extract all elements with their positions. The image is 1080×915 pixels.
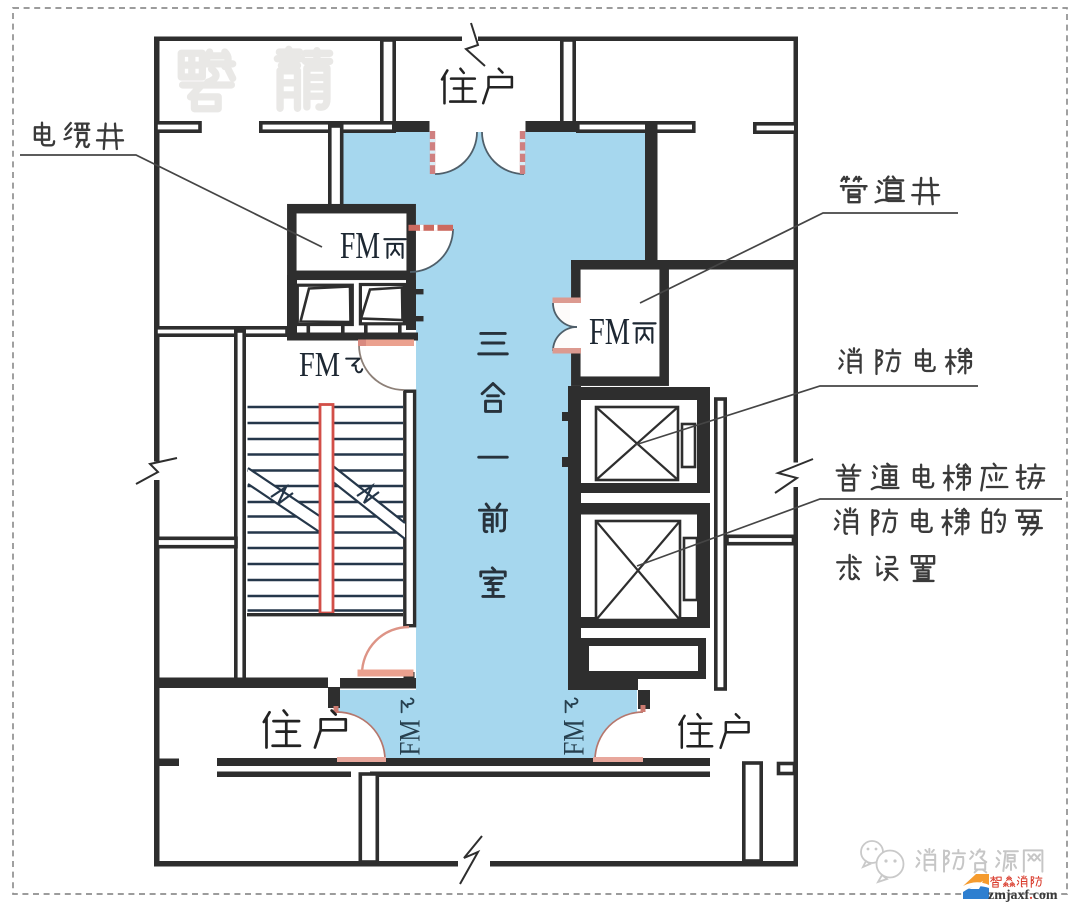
- svg-text:FM: FM: [340, 225, 380, 267]
- svg-text:FM: FM: [589, 311, 630, 353]
- svg-text:zmjaxf.com: zmjaxf.com: [988, 888, 1058, 903]
- svg-text:FM: FM: [299, 345, 340, 384]
- svg-text:FM: FM: [394, 720, 427, 756]
- svg-text:FM: FM: [558, 720, 591, 756]
